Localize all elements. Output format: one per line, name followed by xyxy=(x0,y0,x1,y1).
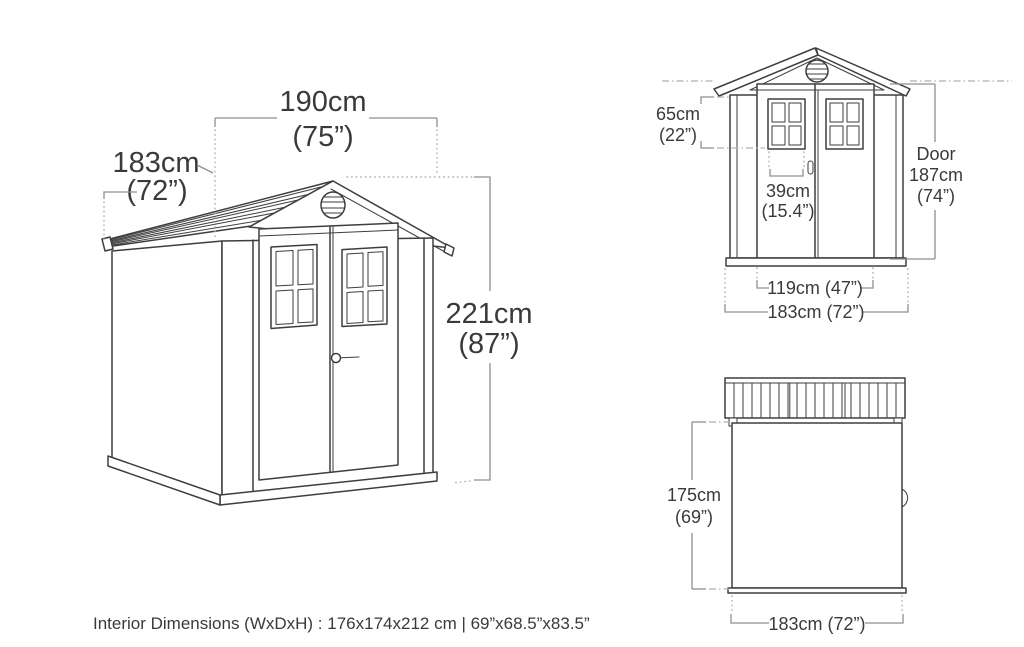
top-door-handle xyxy=(902,489,908,507)
shed-top-view: 175cm (69”) 183cm (72”) xyxy=(667,378,908,634)
dimension-diagram: 190cm (75”) 183cm (72”) 221cm (87”) xyxy=(0,0,1024,647)
interior-dimensions-text: Interior Dimensions (WxDxH) : 176x174x21… xyxy=(93,614,590,633)
dim-door-in-label: (74”) xyxy=(917,186,955,206)
dim-top-width: 183cm (72”) xyxy=(731,596,903,634)
dim-frontwidth-label: 183cm (72”) xyxy=(767,302,864,322)
top-base-plinth xyxy=(728,588,906,593)
front-base-plinth xyxy=(726,258,906,266)
dim-height-cm-label: 221cm xyxy=(445,298,532,330)
door-window-right xyxy=(342,247,387,327)
dim-topdepth-cm-label: 175cm xyxy=(667,485,721,505)
dim-gable-in-label: (22”) xyxy=(659,125,697,145)
front-double-doors xyxy=(757,84,874,258)
dim-window-in-label: (15.4”) xyxy=(761,201,814,221)
dim-width-in-label: (75”) xyxy=(292,121,353,153)
dim-height-in-label: (87”) xyxy=(458,328,519,360)
shed-front-elevation: 65cm (22”) 39cm (15.4”) Door 187cm (74”) xyxy=(656,48,1012,322)
roof-eave-cap-right xyxy=(444,244,454,256)
top-body xyxy=(732,423,902,588)
dim-window-cm-label: 39cm xyxy=(766,181,810,201)
double-doors xyxy=(259,223,398,480)
dim-depth-in-label: (72”) xyxy=(126,175,187,207)
front-window-right xyxy=(826,99,863,149)
dim-top-depth: 175cm (69”) xyxy=(667,422,729,589)
door-window-left xyxy=(271,245,317,329)
top-roof-strip xyxy=(725,378,905,426)
diagram-canvas: 190cm (75”) 183cm (72”) 221cm (87”) xyxy=(0,0,1024,647)
dim-gable-cm-label: 65cm xyxy=(656,104,700,124)
dim-door-width: 119cm (47”) xyxy=(757,268,873,298)
dim-door-height: Door 187cm (74”) xyxy=(890,81,1012,259)
shed-perspective-view: 190cm (75”) 183cm (72”) 221cm (87”) xyxy=(102,86,533,505)
gable-vent-icon xyxy=(321,192,345,218)
dim-topwidth-label: 183cm (72”) xyxy=(768,614,865,634)
front-door-handle xyxy=(808,161,813,174)
side-wall xyxy=(112,241,222,500)
dim-topdepth-in-label: (69”) xyxy=(675,507,713,527)
dim-door-title-label: Door xyxy=(916,144,955,164)
front-gable-vent-icon xyxy=(806,60,828,82)
dim-width-cm-label: 190cm xyxy=(279,86,366,118)
dim-door-cm-label: 187cm xyxy=(909,165,963,185)
front-window-left xyxy=(768,99,805,149)
dim-doorwidth-label: 119cm (47”) xyxy=(767,278,863,298)
